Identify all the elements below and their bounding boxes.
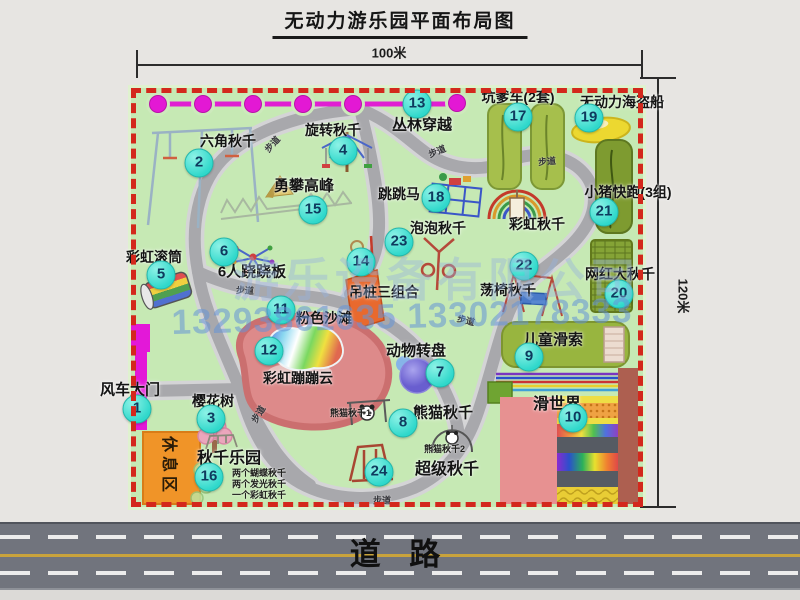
marker-16: 16	[195, 463, 224, 492]
marker-22: 22	[510, 252, 539, 281]
marker-2: 2	[185, 149, 214, 178]
marker-number: 7	[436, 364, 444, 381]
marker-number: 9	[525, 348, 533, 365]
label-super-swing: 超级秋千	[415, 455, 479, 479]
marker-number: 1	[133, 400, 141, 417]
marker-number: 8	[399, 414, 407, 431]
right-dimension-tick-bottom	[640, 506, 676, 508]
marker-11: 11	[267, 296, 296, 325]
marker-15: 15	[299, 196, 328, 225]
path-label: 步道	[236, 283, 255, 297]
top-dimension-label: 100米	[372, 43, 407, 62]
marker-20: 20	[605, 280, 634, 309]
path-label: 步道	[537, 154, 556, 169]
label-rest-area: 休息区	[159, 436, 183, 496]
right-dimension-tick-top	[640, 77, 676, 79]
panda-swing-1-note: 熊猫秋千1	[330, 406, 371, 419]
marker-21: 21	[590, 198, 619, 227]
marker-14: 14	[347, 248, 376, 277]
marker-number: 6	[220, 243, 228, 260]
marker-number: 10	[565, 409, 582, 426]
label-rotating-swing: 旋转秋千	[305, 120, 361, 140]
swing-park-note-3: 一个彩虹秋千	[232, 488, 286, 501]
page-title: 无动力游乐园平面布局图	[272, 6, 527, 39]
park-layout-plan: 无动力游乐园平面布局图 100米 120米	[0, 0, 800, 600]
marker-number: 2	[195, 154, 203, 171]
label-rainbow-bounce-cloud: 彩虹蹦蹦云	[263, 368, 333, 388]
marker-18: 18	[422, 184, 451, 213]
label-panda-swing: 熊猫秋千	[413, 402, 473, 423]
label-swing-chair: 荡椅秋千	[480, 280, 536, 300]
path-label: 步道	[373, 494, 391, 507]
marker-12: 12	[255, 337, 284, 366]
marker-19: 19	[575, 104, 604, 133]
marker-17: 17	[504, 103, 533, 132]
label-jumping-horse: 跳跳马	[378, 184, 420, 204]
label-rainbow-swing: 彩虹秋千	[509, 214, 565, 234]
marker-number: 15	[305, 201, 322, 218]
marker-number: 4	[339, 142, 347, 159]
bubble-swing-icon	[422, 238, 455, 290]
marker-5: 5	[147, 261, 176, 290]
marker-number: 12	[261, 342, 278, 359]
top-dimension-tick-left	[136, 50, 138, 78]
right-dimension-label: 120米	[675, 279, 694, 314]
marker-number: 17	[510, 108, 527, 125]
label-hanging-pile: 吊桩三组合	[349, 282, 419, 302]
label-bubble-swing: 泡泡秋千	[410, 218, 466, 238]
top-dimension-line	[136, 64, 642, 66]
marker-4: 4	[329, 137, 358, 166]
marker-number: 19	[581, 109, 598, 126]
marker-number: 14	[353, 253, 370, 270]
marker-number: 23	[391, 233, 408, 250]
marker-number: 22	[516, 257, 533, 274]
marker-9: 9	[515, 343, 544, 372]
slide-world-icon	[500, 368, 638, 504]
marker-1: 1	[123, 395, 152, 424]
marker-number: 13	[409, 95, 426, 112]
marker-number: 18	[428, 189, 445, 206]
marker-23: 23	[385, 228, 414, 257]
marker-number: 20	[611, 285, 628, 302]
label-animal-carousel: 动物转盘	[386, 340, 446, 361]
marker-number: 3	[207, 410, 215, 427]
right-dimension-line	[657, 78, 659, 508]
marker-6: 6	[210, 238, 239, 267]
label-hexagon-swing: 六角秋千	[200, 131, 256, 151]
label-pink-beach: 粉色沙滩	[296, 308, 352, 328]
marker-8: 8	[389, 409, 418, 438]
top-dimension-tick-right	[641, 50, 643, 78]
marker-3: 3	[197, 405, 226, 434]
panda-swing-2-note: 熊猫秋千2	[424, 442, 465, 455]
marker-10: 10	[559, 404, 588, 433]
marker-number: 11	[273, 301, 289, 318]
marker-number: 21	[596, 203, 613, 220]
label-climbing-peak: 勇攀高峰	[274, 175, 334, 196]
marker-24: 24	[365, 458, 394, 487]
marker-number: 16	[201, 468, 218, 485]
marker-number: 24	[371, 463, 388, 480]
marker-number: 5	[157, 266, 165, 283]
marker-13: 13	[403, 90, 432, 119]
marker-7: 7	[426, 359, 455, 388]
